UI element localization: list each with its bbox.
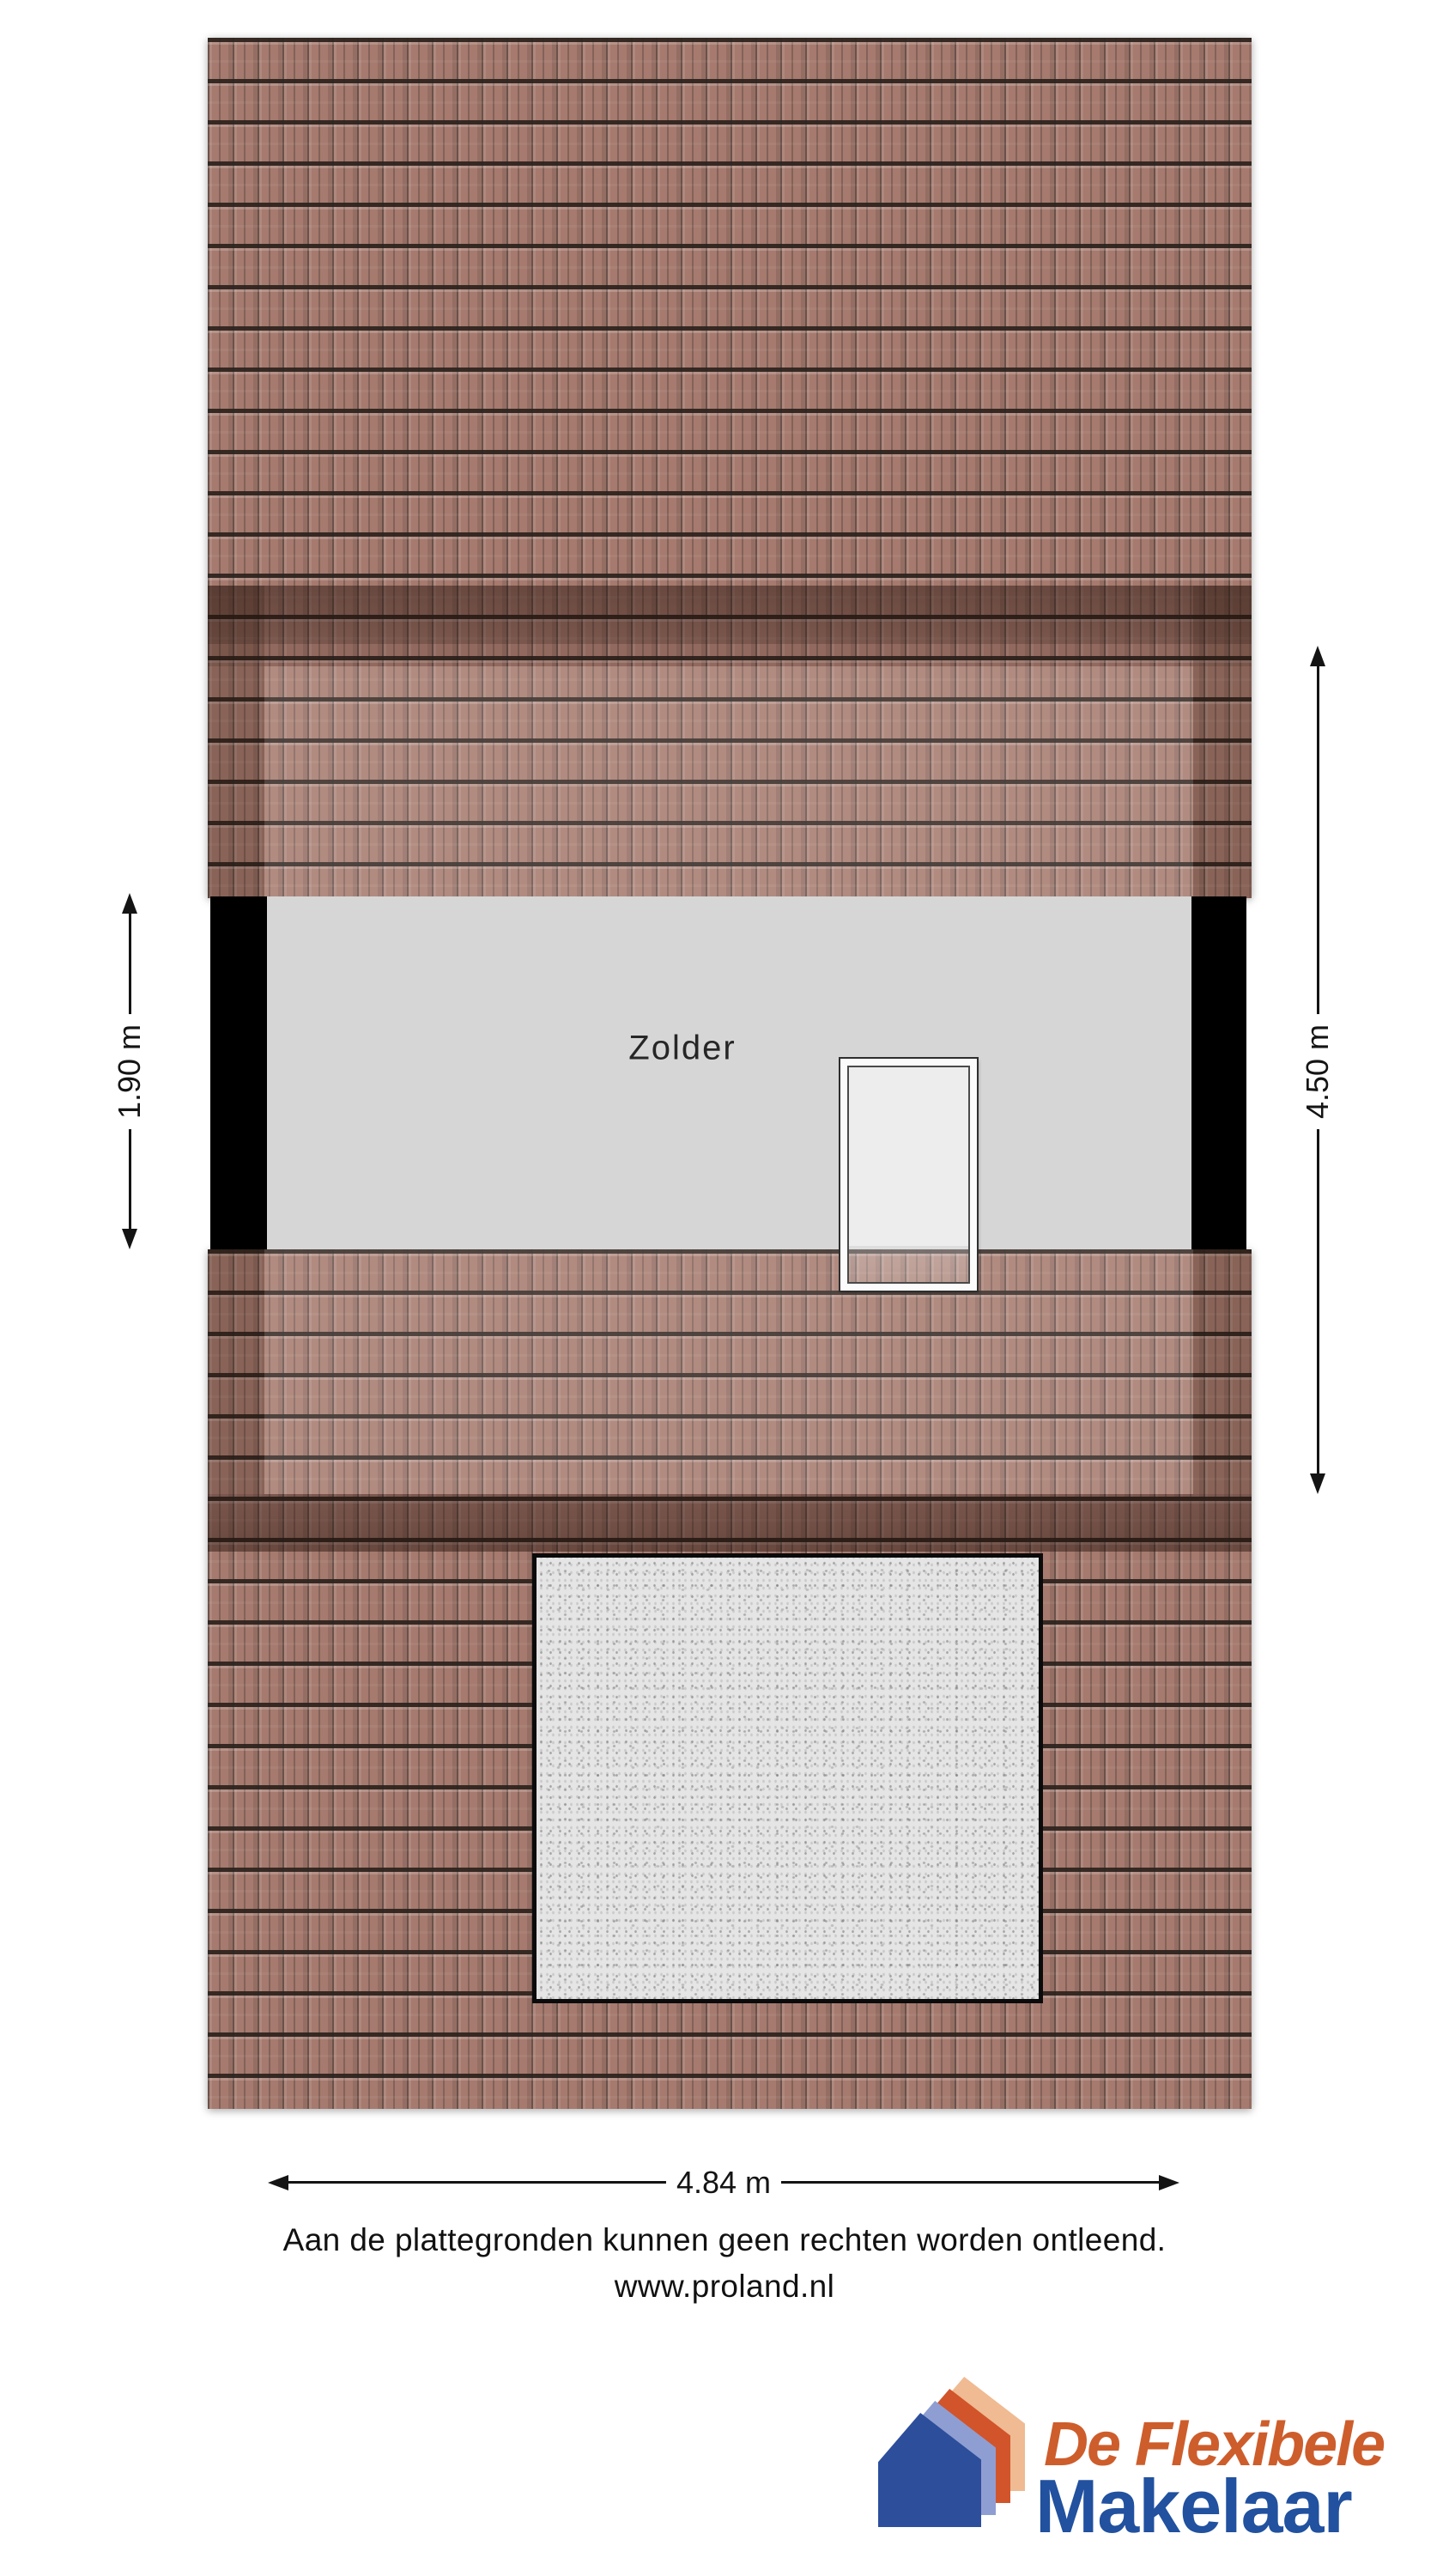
arrowhead-down-icon xyxy=(1310,1473,1325,1494)
website-text: www.proland.nl xyxy=(0,2269,1449,2305)
room-label-zolder: Zolder xyxy=(628,1030,736,1068)
roof-window xyxy=(840,1059,977,1291)
floorplan-page: Zolder 1.90 m 4.50 m 4.84 m Aan de platt… xyxy=(0,0,1449,2576)
roof-window-leaf xyxy=(847,1066,970,1284)
arrowhead-down-icon xyxy=(122,1229,137,1249)
arrowhead-right-icon xyxy=(1159,2175,1179,2190)
wall-left xyxy=(210,896,267,1249)
logo-text-line2: Makelaar xyxy=(1035,2463,1352,2550)
zolder-floor xyxy=(267,896,1191,1249)
dimension-label-left: 1.90 m xyxy=(108,1014,151,1129)
dimension-label-right: 4.50 m xyxy=(1296,1014,1339,1129)
wall-right xyxy=(1191,896,1246,1249)
dimension-label-bottom: 4.84 m xyxy=(666,2161,781,2204)
roof-tiles-upper xyxy=(208,38,1252,898)
disclaimer-text: Aan de plattegronden kunnen geen rechten… xyxy=(0,2222,1449,2258)
concrete-block xyxy=(532,1553,1043,2003)
